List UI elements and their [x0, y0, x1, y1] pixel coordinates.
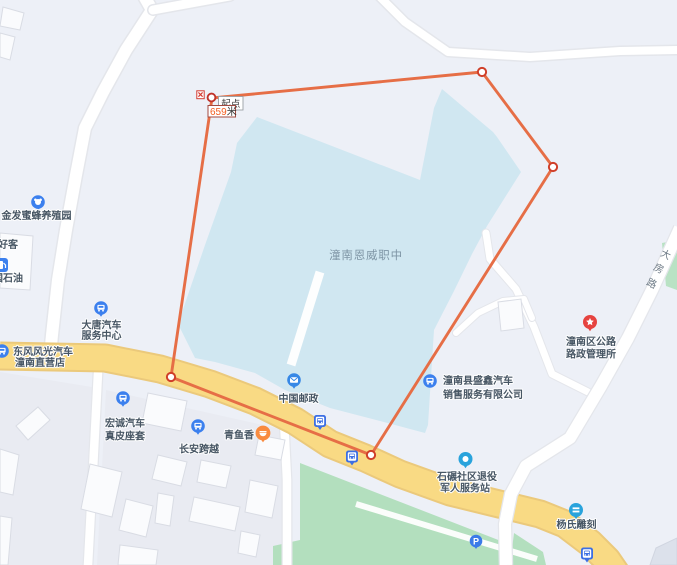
svg-text:P: P — [473, 536, 479, 546]
svg-text:杨氏雕刻: 杨氏雕刻 — [557, 518, 597, 531]
svg-text:东风风光汽车: 东风风光汽车 — [13, 345, 73, 358]
svg-text:真皮座套: 真皮座套 — [105, 430, 146, 443]
svg-text:潼南直营店: 潼南直营店 — [15, 356, 65, 369]
svg-text:军人服务站: 军人服务站 — [440, 482, 490, 495]
svg-text:路政管理所: 路政管理所 — [566, 348, 616, 361]
svg-text:宏诚汽车: 宏诚汽车 — [105, 417, 145, 430]
svg-text:石碾社区退役: 石碾社区退役 — [436, 470, 498, 483]
svg-text:金发蜜蜂养殖园: 金发蜜蜂养殖园 — [1, 209, 72, 222]
svg-text:国石油: 国石油 — [0, 272, 23, 285]
svg-text:潼南县盛鑫汽车: 潼南县盛鑫汽车 — [443, 374, 513, 387]
svg-text:大唐汽车: 大唐汽车 — [82, 319, 122, 332]
svg-text:潼南恩威职中: 潼南恩威职中 — [329, 248, 403, 262]
svg-text:中国邮政: 中国邮政 — [279, 392, 320, 405]
svg-text:长安跨越: 长安跨越 — [179, 443, 220, 456]
svg-text:服务中心: 服务中心 — [82, 329, 122, 342]
svg-text:销售服务有限公司: 销售服务有限公司 — [443, 388, 523, 401]
svg-text:潼南区公路: 潼南区公路 — [566, 335, 617, 348]
svg-text:青鱼香: 青鱼香 — [224, 429, 254, 442]
svg-text:659米: 659米 — [210, 105, 237, 118]
svg-text:好客: 好客 — [0, 238, 19, 251]
